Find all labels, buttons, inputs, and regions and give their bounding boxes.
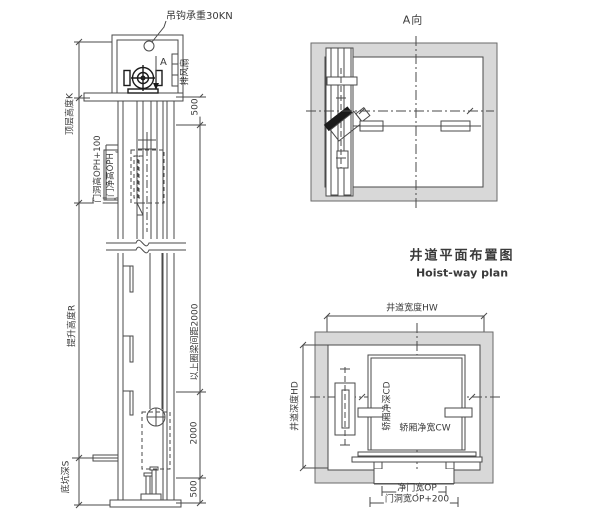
section-arrow-label: A: [160, 58, 167, 68]
exhaust-fan-icon: [172, 54, 178, 86]
plan-a-title: A向: [403, 15, 424, 26]
travel-height-label: 提升高度R: [69, 305, 78, 347]
exhaust-fan-label: 排风扇: [182, 58, 191, 85]
machine-room: [84, 21, 183, 101]
dim-bottom-500: 500: [191, 479, 200, 498]
hoistway-plan-view: [300, 313, 500, 507]
pit-area: [93, 253, 170, 500]
hoist-ropes: [137, 101, 157, 239]
door-clear-height-label: 门净高OPH: [107, 152, 116, 198]
hook-load-label: 吊钩承重30KN: [166, 12, 233, 22]
pit-depth-label: 底坑深S: [63, 461, 72, 494]
hoistway-plan-title: 井道平面布置图: [409, 250, 514, 263]
door-opening-width-label: 门洞宽OP+200: [384, 496, 450, 505]
hook-icon: [144, 41, 154, 51]
hoistway-width-label: 井道宽度HW: [386, 305, 438, 314]
plan-a-view: [306, 36, 497, 210]
dim-ring-beam-spacing: 以上圈梁间距2000: [192, 304, 201, 381]
top-floor-height-label: 顶层高度K: [67, 93, 76, 135]
buffer-icon: [141, 467, 161, 500]
left-dimension-chain: [72, 39, 118, 508]
section-arrow-icon: [153, 56, 159, 90]
dim-lower-2000: 2000: [191, 421, 200, 446]
break-line-icon: [106, 240, 186, 253]
shaft-walls: [110, 101, 181, 507]
rail-brackets: [123, 266, 133, 415]
hoistway-depth-label: 井道深度HD: [292, 381, 301, 431]
elevation-section: [72, 21, 206, 508]
door-clear-width-label: 净门宽OP: [396, 485, 438, 494]
dim-top-500: 500: [192, 97, 201, 116]
elevator-shaft-drawing: 吊钩承重30KN A 排风扇 顶层高度K 门洞高OPH+100 门净高OPH 提…: [0, 0, 600, 523]
car-depth-label: 轿厢净深CD: [384, 380, 393, 431]
sheave-icon: [147, 408, 165, 426]
hoistway-plan-subtitle: Hoist-way plan: [416, 268, 508, 279]
car-width-label: 轿厢净宽CW: [398, 425, 451, 434]
door-opening-height-label: 门洞高OPH+100: [94, 134, 103, 203]
